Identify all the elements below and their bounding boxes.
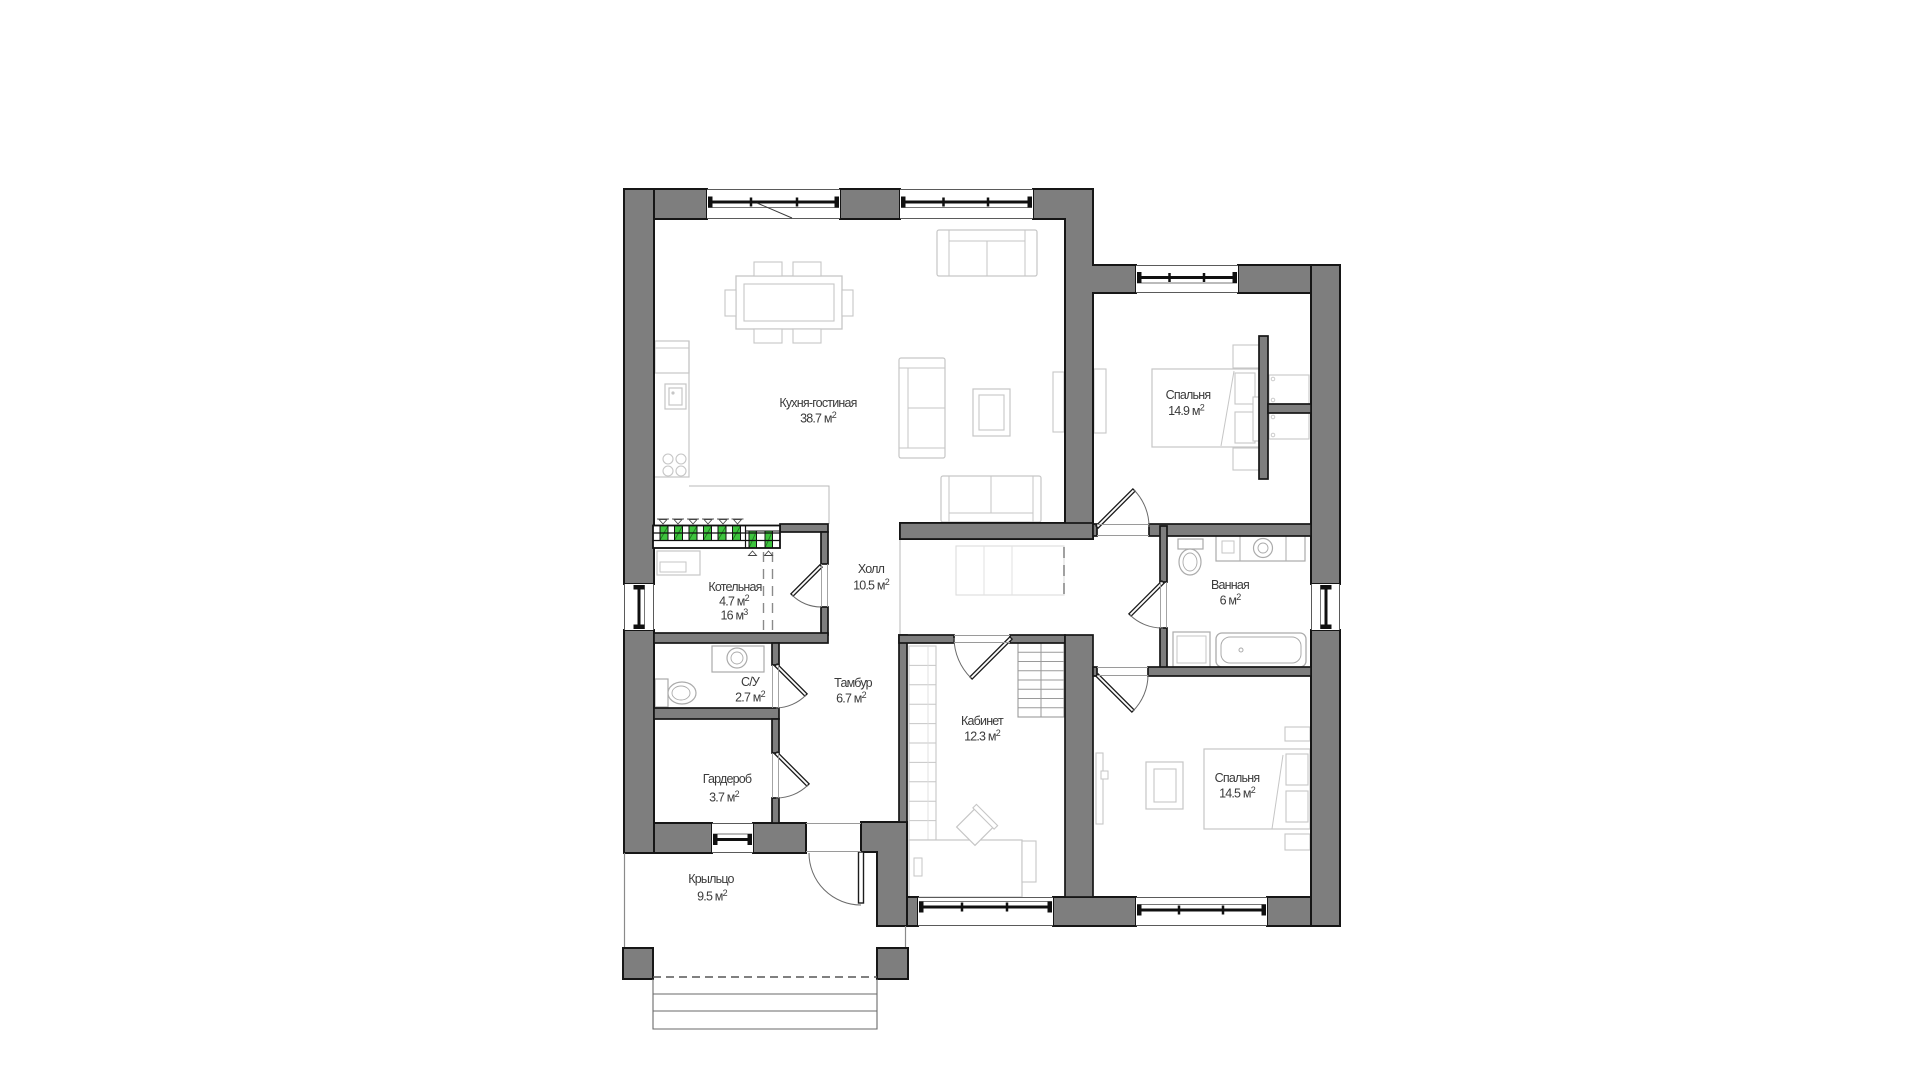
svg-text:Спальня: Спальня — [1215, 771, 1260, 785]
svg-text:Ванная: Ванная — [1211, 578, 1249, 592]
svg-text:Холл: Холл — [858, 562, 885, 576]
svg-text:Тамбур: Тамбур — [834, 676, 872, 690]
svg-text:12.3 м2: 12.3 м2 — [964, 728, 1001, 744]
svg-text:Спальня: Спальня — [1166, 388, 1211, 402]
svg-text:С/У: С/У — [741, 675, 760, 689]
svg-text:14.9 м2: 14.9 м2 — [1168, 403, 1205, 419]
svg-text:Кабинет: Кабинет — [961, 714, 1004, 728]
svg-text:Гардероб: Гардероб — [703, 772, 752, 786]
svg-text:Котельная: Котельная — [708, 580, 761, 594]
svg-text:Кухня-гостиная: Кухня-гостиная — [779, 396, 856, 410]
svg-text:38.7 м2: 38.7 м2 — [800, 410, 837, 426]
svg-text:10.5 м2: 10.5 м2 — [853, 577, 890, 593]
svg-text:Крыльцо: Крыльцо — [688, 872, 734, 886]
svg-text:14.5 м2: 14.5 м2 — [1219, 785, 1256, 801]
